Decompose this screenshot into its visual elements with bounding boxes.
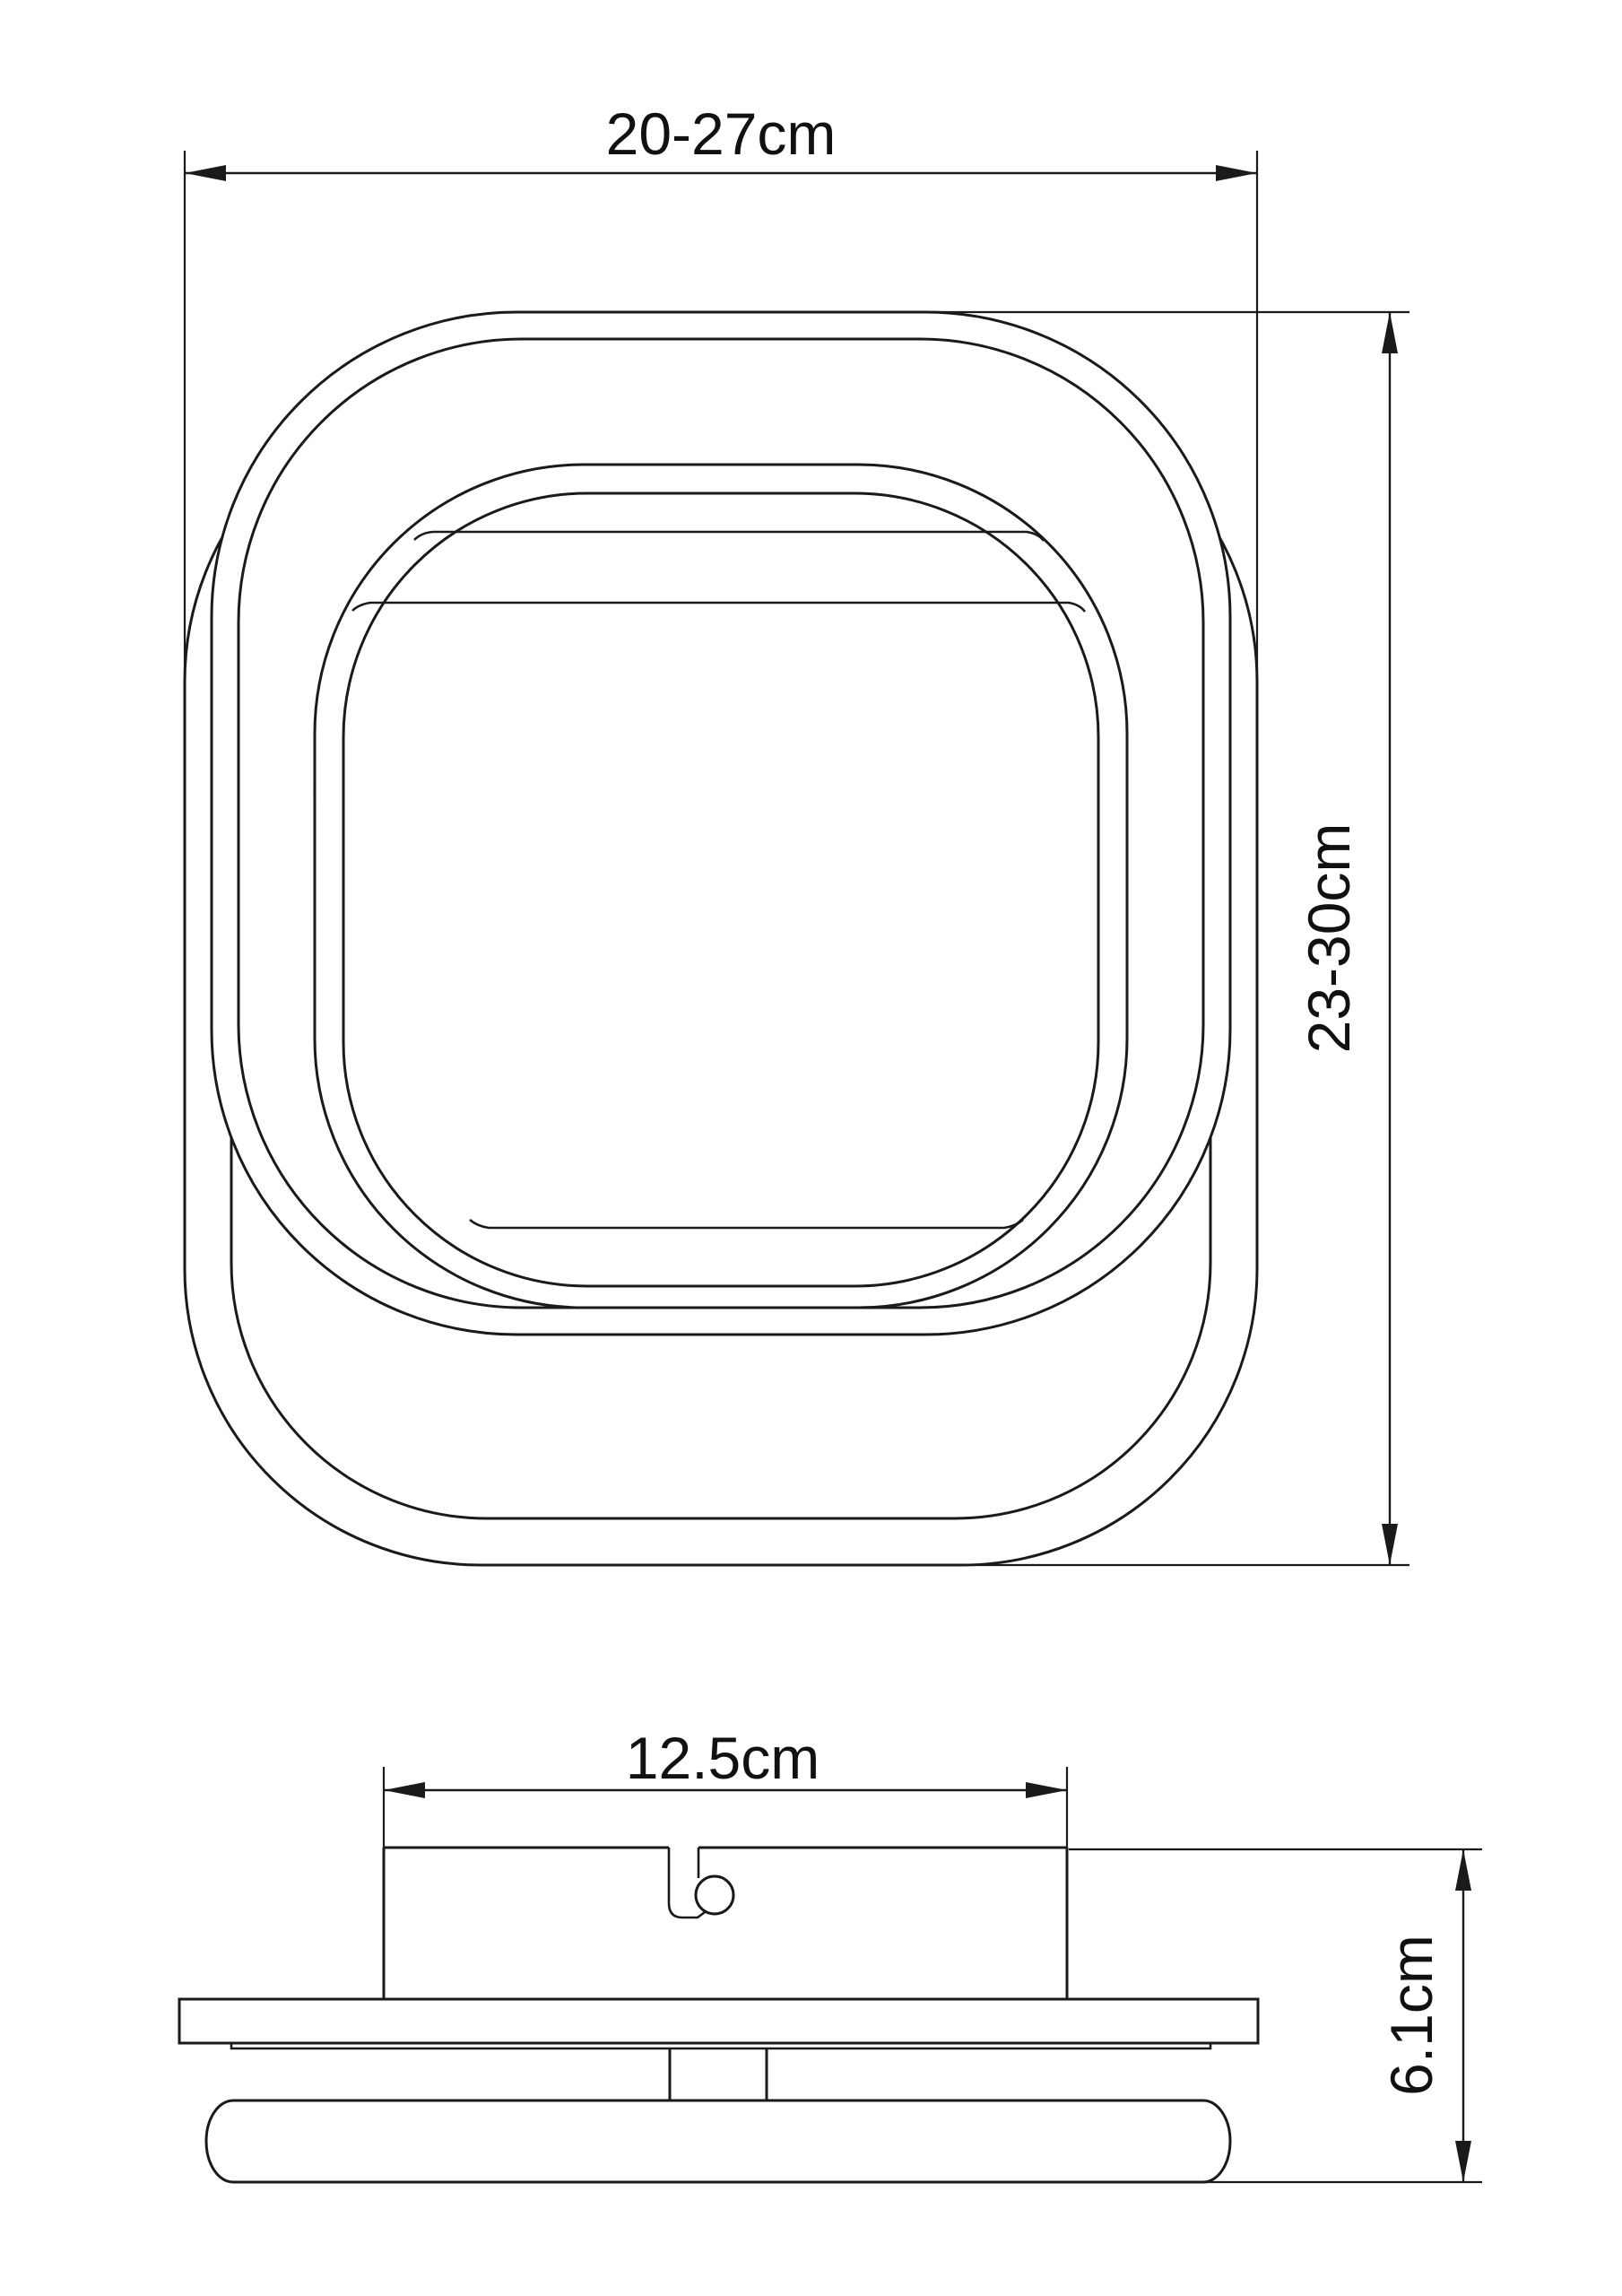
overall-width-label: 20-27cm [606, 100, 837, 167]
inner-ring-outer-outline [315, 465, 1127, 1308]
dimension-overall-width: 20-27cm [185, 100, 1257, 683]
arrowhead-up-icon [1455, 1849, 1471, 1891]
keyhole-circle [696, 1876, 733, 1914]
stem [670, 2048, 767, 2100]
arrowhead-left-icon [384, 1782, 425, 1798]
light-bar-profile [206, 2100, 1230, 2182]
arrowhead-left-icon [185, 165, 226, 181]
keyhole-slot [669, 1848, 733, 1918]
inner-ring-inner-outline [343, 493, 1098, 1286]
bracket-width-label: 12.5cm [626, 1725, 820, 1791]
back-plate [185, 386, 1257, 1565]
arrowhead-right-icon [1026, 1782, 1067, 1798]
overall-height-label: 23-30cm [1296, 823, 1362, 1054]
dimension-overall-height: 23-30cm [932, 312, 1409, 1565]
mounting-bracket [384, 1848, 1067, 1999]
arrowhead-right-icon [1216, 165, 1257, 181]
top-view [185, 312, 1257, 1565]
profile-height-label: 6.1cm [1378, 1935, 1444, 2096]
dimension-profile-height: 6.1cm [1069, 1849, 1482, 2182]
side-view [179, 1848, 1258, 2182]
canopy-plate [179, 1999, 1258, 2043]
front-ring-inner-outline [239, 339, 1203, 1308]
back-plate-inner-outline [231, 432, 1210, 1518]
bezel-top-edge [414, 532, 1044, 541]
back-plate-outer-outline [185, 386, 1257, 1565]
dimension-bracket-width: 12.5cm [384, 1725, 1067, 1849]
lamp-dimension-drawing: 20-27cm 23-30cm [0, 0, 1622, 2296]
drawing-sheet: 20-27cm 23-30cm [0, 0, 1622, 2296]
panel-bottom-edge [470, 1220, 1023, 1228]
arrowhead-down-icon [1382, 1524, 1398, 1565]
arrowhead-down-icon [1455, 2141, 1471, 2182]
panel-top-edge [352, 603, 1085, 612]
arrowhead-up-icon [1382, 312, 1398, 353]
